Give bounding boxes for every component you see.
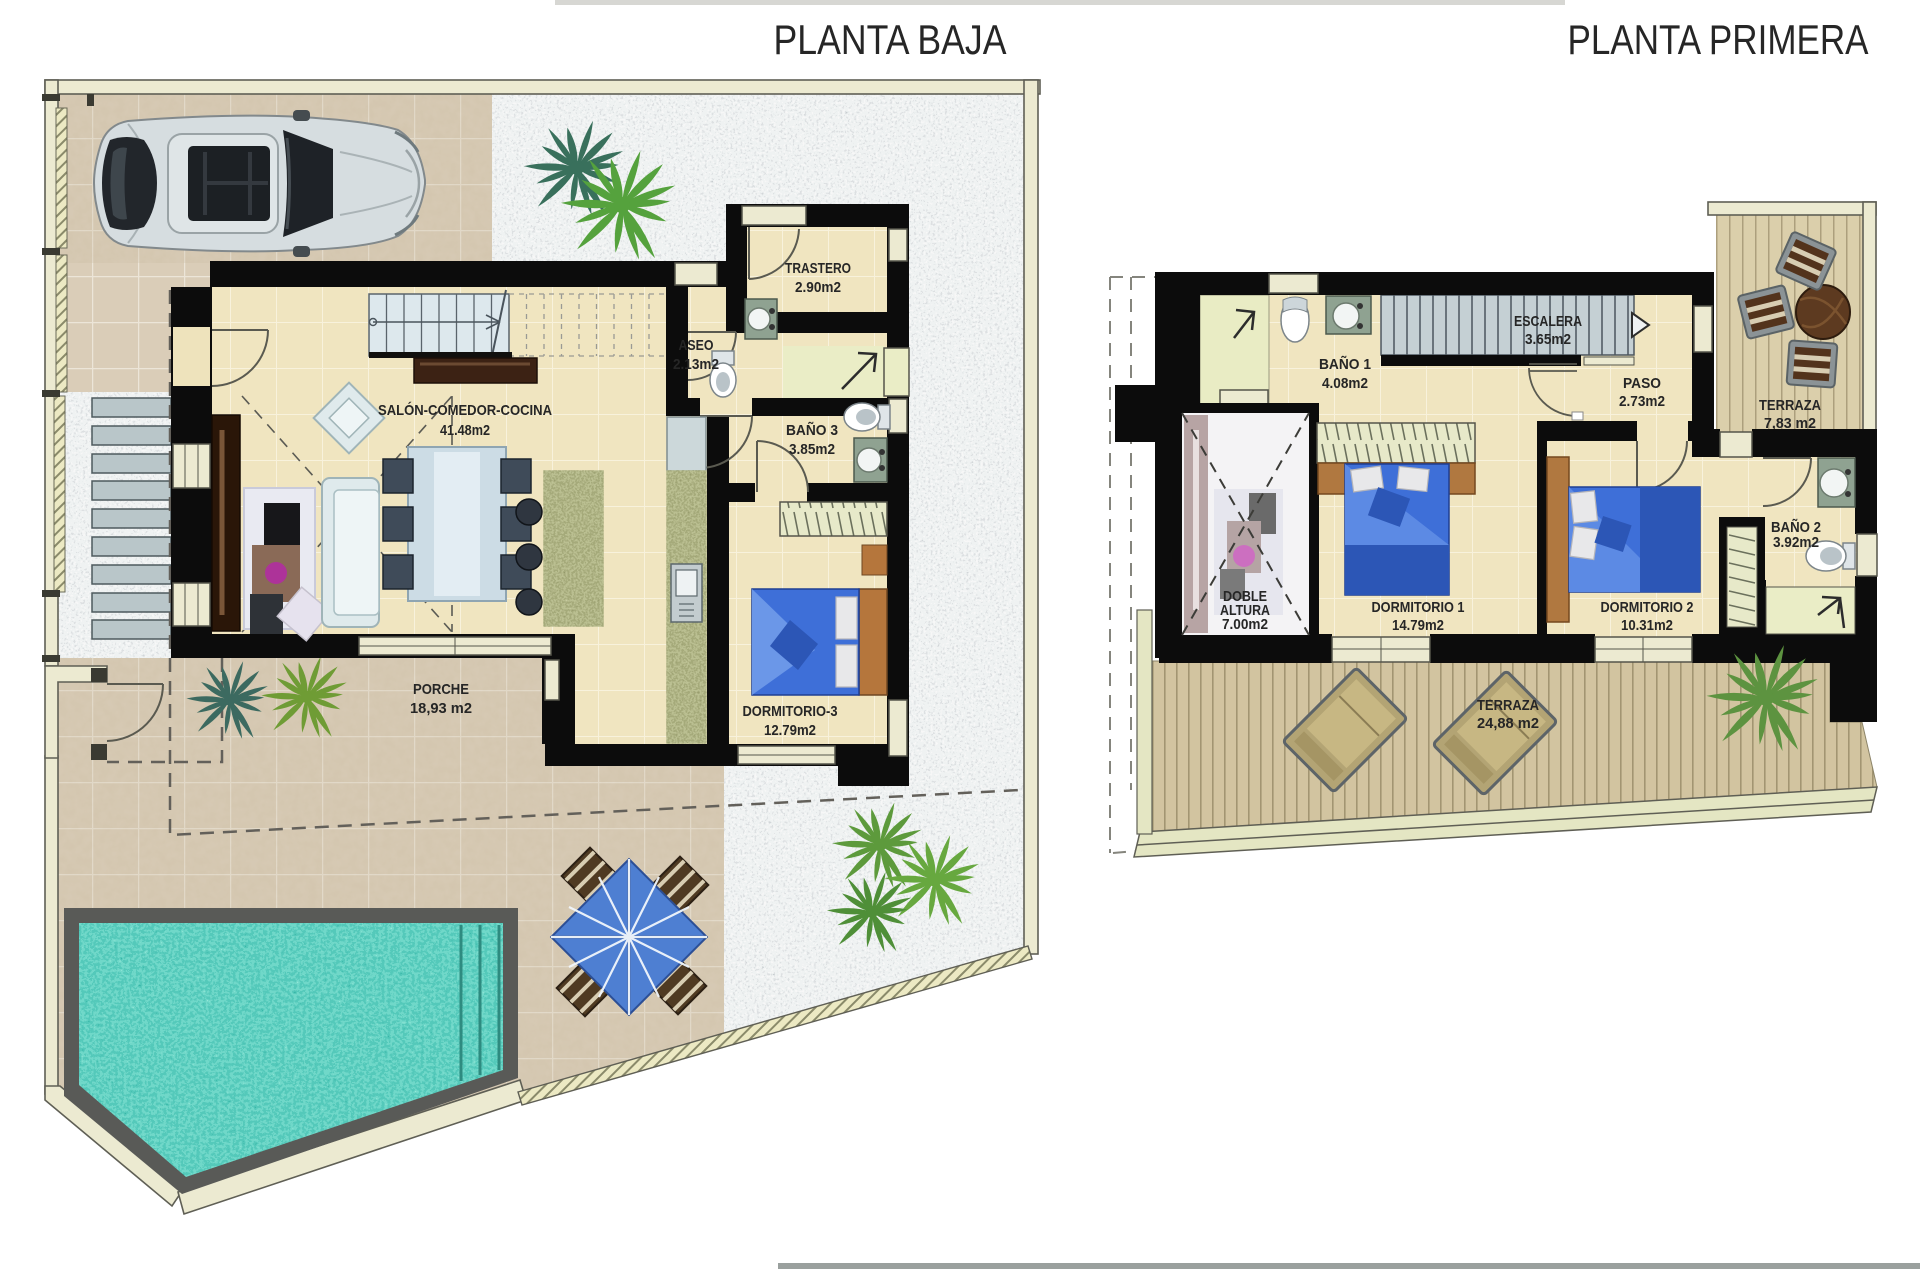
svg-text:DORMITORIO 2: DORMITORIO 2 [1601, 599, 1694, 616]
svg-text:PLANTA BAJA: PLANTA BAJA [774, 16, 1007, 63]
svg-text:PORCHE: PORCHE [413, 681, 469, 698]
svg-text:14.79m2: 14.79m2 [1392, 617, 1444, 634]
svg-text:PLANTA PRIMERA: PLANTA PRIMERA [1568, 16, 1869, 63]
svg-text:3.65m2: 3.65m2 [1525, 331, 1571, 348]
svg-text:ASEO: ASEO [679, 337, 714, 354]
svg-text:10.31m2: 10.31m2 [1621, 617, 1673, 634]
svg-text:2.90m2: 2.90m2 [795, 279, 841, 296]
svg-text:DORMITORIO 1: DORMITORIO 1 [1372, 599, 1465, 616]
svg-text:41.48m2: 41.48m2 [440, 422, 490, 439]
svg-text:ESCALERA: ESCALERA [1514, 313, 1582, 330]
svg-text:DORMITORIO-3: DORMITORIO-3 [743, 703, 838, 720]
svg-text:12.79m2: 12.79m2 [764, 722, 816, 739]
svg-text:SALÓN-COMEDOR-COCINA: SALÓN-COMEDOR-COCINA [378, 401, 552, 419]
svg-text:3.92m2: 3.92m2 [1773, 534, 1819, 551]
svg-text:24,88 m2: 24,88 m2 [1477, 715, 1539, 732]
svg-text:18,93 m2: 18,93 m2 [410, 700, 472, 717]
svg-text:4.08m2: 4.08m2 [1322, 375, 1368, 392]
svg-text:3.85m2: 3.85m2 [789, 441, 835, 458]
svg-text:7.00m2: 7.00m2 [1222, 616, 1268, 633]
svg-text:PASO: PASO [1623, 375, 1661, 392]
svg-text:TRASTERO: TRASTERO [785, 260, 851, 277]
svg-text:BAÑO 1: BAÑO 1 [1319, 355, 1371, 373]
svg-text:BAÑO 3: BAÑO 3 [786, 421, 838, 439]
svg-text:TERRAZA: TERRAZA [1759, 397, 1821, 414]
svg-text:2.13m2: 2.13m2 [673, 356, 719, 373]
svg-text:2.73m2: 2.73m2 [1619, 393, 1665, 410]
svg-text:TERRAZA: TERRAZA [1477, 697, 1539, 714]
